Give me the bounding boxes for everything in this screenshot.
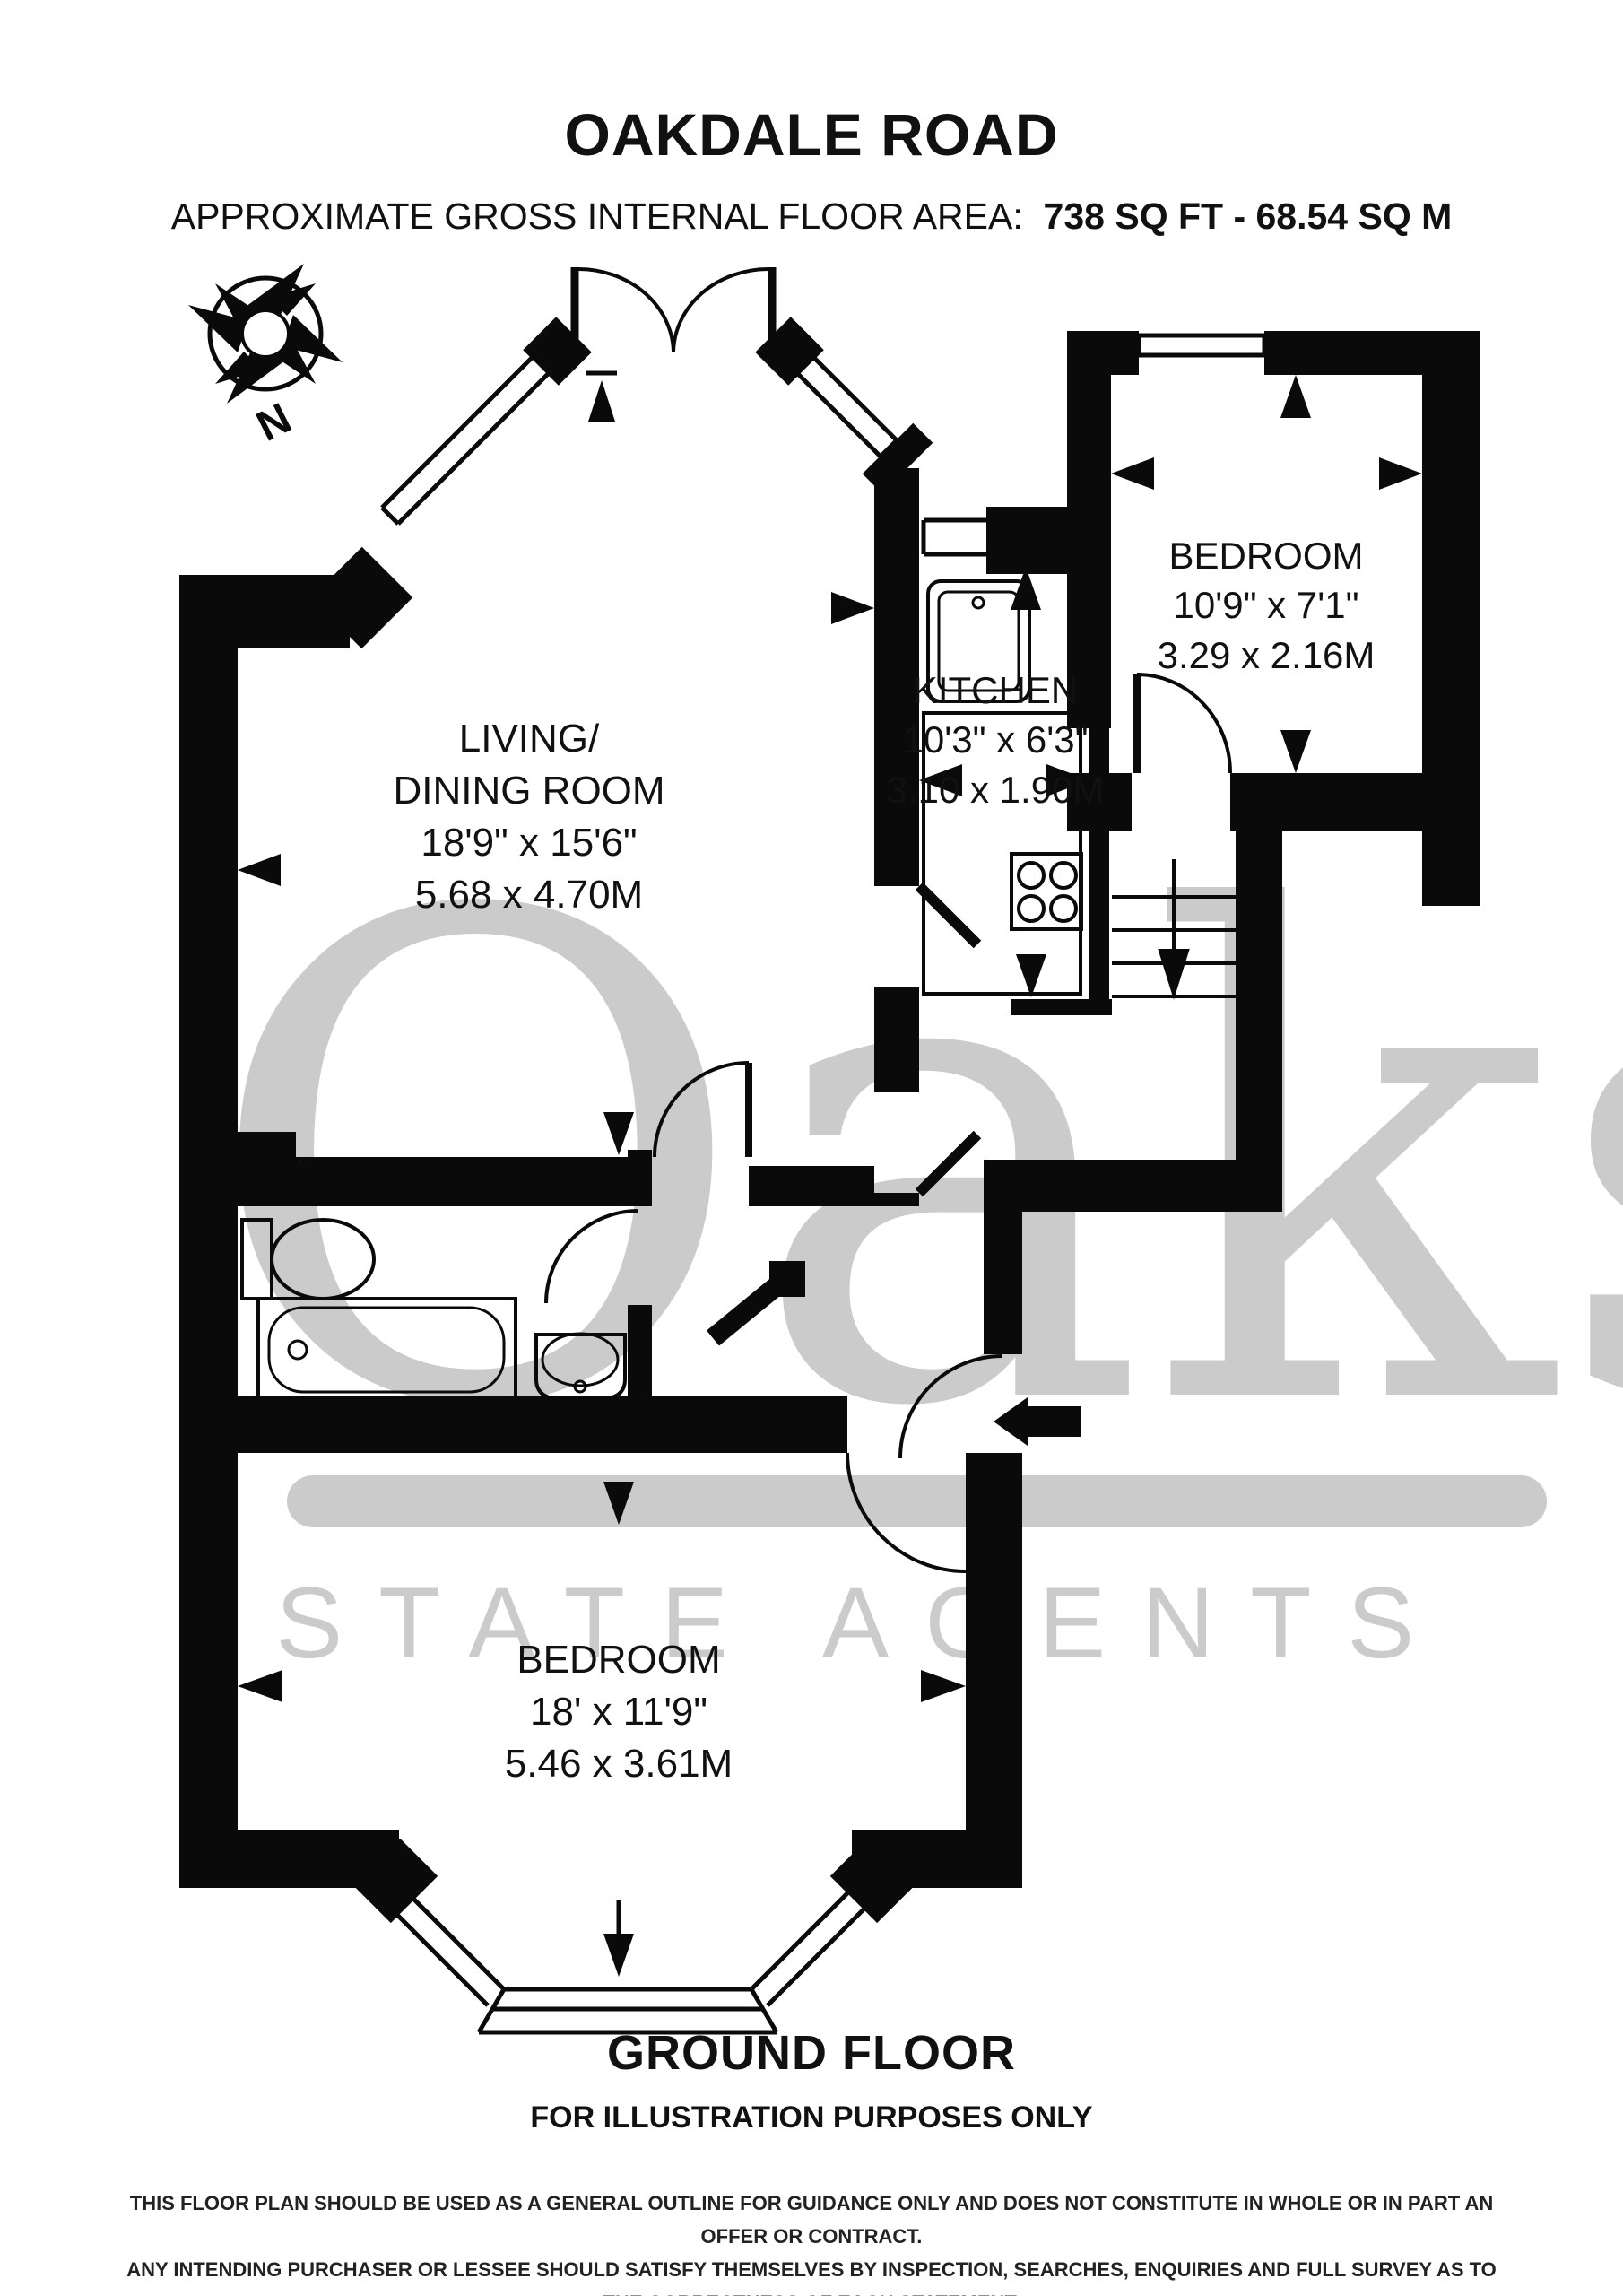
arrow-living-right <box>831 592 874 624</box>
wall-west <box>179 575 238 1888</box>
kitchen-size-metric: 3.10 x 1.90M <box>834 765 1157 814</box>
wall-kitchen-west-foot <box>874 1193 919 1206</box>
watermark-underline-bar <box>287 1475 1547 1527</box>
wall-entrance-north <box>984 1212 1022 1354</box>
wall-bedroom2-east <box>966 1453 1022 1879</box>
bedroom1-name: BEDROOM <box>1114 531 1419 580</box>
arrow-bedroom1-down <box>1280 730 1311 773</box>
room-label-bedroom-bottom: BEDROOM 18' x 11'9" 5.46 x 3.61M <box>377 1634 861 1790</box>
kitchen-name: KITCHEN <box>834 665 1157 715</box>
floor-area-label: APPROXIMATE GROSS INTERNAL FLOOR AREA: <box>171 196 1023 237</box>
wall-bedroom1-west-mass <box>1038 507 1111 574</box>
bedroom2-name: BEDROOM <box>377 1634 861 1686</box>
floorplan-drawing: Oaks ESTATE AGENTS N <box>0 0 1623 2296</box>
french-doors <box>575 267 772 352</box>
kitchen-window <box>924 520 986 554</box>
arrow-living-up <box>588 380 615 422</box>
wall-hall-north <box>749 1166 874 1206</box>
compass-north-label: N <box>249 395 299 451</box>
wall-hall-jog <box>628 1150 652 1206</box>
bedroom1-size-imperial: 10'9" x 7'1" <box>1114 580 1419 630</box>
floor-name: GROUND FLOOR <box>0 2025 1623 2081</box>
bedroom1-window <box>1139 335 1264 355</box>
arrow-bedroom1-left <box>1111 457 1154 490</box>
wall-bay-corner-left <box>336 572 387 623</box>
kitchen-size-imperial: 10'3" x 6'3" <box>834 715 1157 764</box>
living-name-line1: LIVING/ <box>296 713 762 765</box>
compass-rose: N <box>188 264 343 451</box>
wall-bedroom2-north <box>179 1396 847 1453</box>
bay2-window-right <box>751 1887 870 2005</box>
floor-area-subtitle: APPROXIMATE GROSS INTERNAL FLOOR AREA: 7… <box>0 196 1623 238</box>
bay-window-left <box>382 353 552 524</box>
bedroom2-size-imperial: 18' x 11'9" <box>377 1686 861 1738</box>
arrow-bedroom1-right <box>1379 457 1422 490</box>
disclaimer-line-1: THIS FLOOR PLAN SHOULD BE USED AS A GENE… <box>108 2187 1515 2253</box>
wall-bay2-corner-right <box>854 1862 891 1900</box>
wall-hallway-north <box>984 1160 1282 1212</box>
bedroom1-size-metric: 3.29 x 2.16M <box>1114 631 1419 680</box>
room-label-bedroom-right: BEDROOM 10'9" x 7'1" 3.29 x 2.16M <box>1114 531 1419 680</box>
living-size-imperial: 18'9" x 15'6" <box>296 817 762 869</box>
room-label-kitchen: KITCHEN 10'3" x 6'3" 3.10 x 1.90M <box>834 665 1157 814</box>
page-title: OAKDALE ROAD <box>0 100 1623 169</box>
wall-bedroom1-south-right <box>1230 773 1480 831</box>
bedroom2-size-metric: 5.46 x 3.61M <box>377 1738 861 1790</box>
disclaimer: THIS FLOOR PLAN SHOULD BE USED AS A GENE… <box>108 2187 1515 2296</box>
floor-area-value: 738 SQ FT - 68.54 SQ M <box>1044 196 1453 237</box>
wall-kitchen-south <box>1011 999 1112 1015</box>
arrow-bedroom1-up <box>1280 375 1311 418</box>
wall-landing-east <box>1236 831 1282 1212</box>
illustration-note: FOR ILLUSTRATION PURPOSES ONLY <box>0 2100 1623 2135</box>
wall-bathroom-east <box>628 1305 652 1396</box>
wall-hall-angled-post <box>769 1261 805 1297</box>
arrow-bedroom2-down <box>603 1934 634 1977</box>
compass-hub <box>242 310 289 357</box>
living-name-line2: DINING ROOM <box>296 765 762 817</box>
wall-kitchen-west-upper <box>874 468 919 574</box>
living-size-metric: 5.68 x 4.70M <box>296 869 762 921</box>
floorplan-page: Oaks ESTATE AGENTS N <box>0 0 1623 2296</box>
wall-kitchen-west-mid <box>874 987 919 1092</box>
disclaimer-line-2: ANY INTENDING PURCHASER OR LESSEE SHOULD… <box>108 2253 1515 2296</box>
room-label-living-dining: LIVING/ DINING ROOM 18'9" x 15'6" 5.68 x… <box>296 713 762 921</box>
wall-living-south <box>238 1157 628 1206</box>
bay-window-right <box>794 353 897 457</box>
wall-bay-corner-right <box>888 448 907 468</box>
